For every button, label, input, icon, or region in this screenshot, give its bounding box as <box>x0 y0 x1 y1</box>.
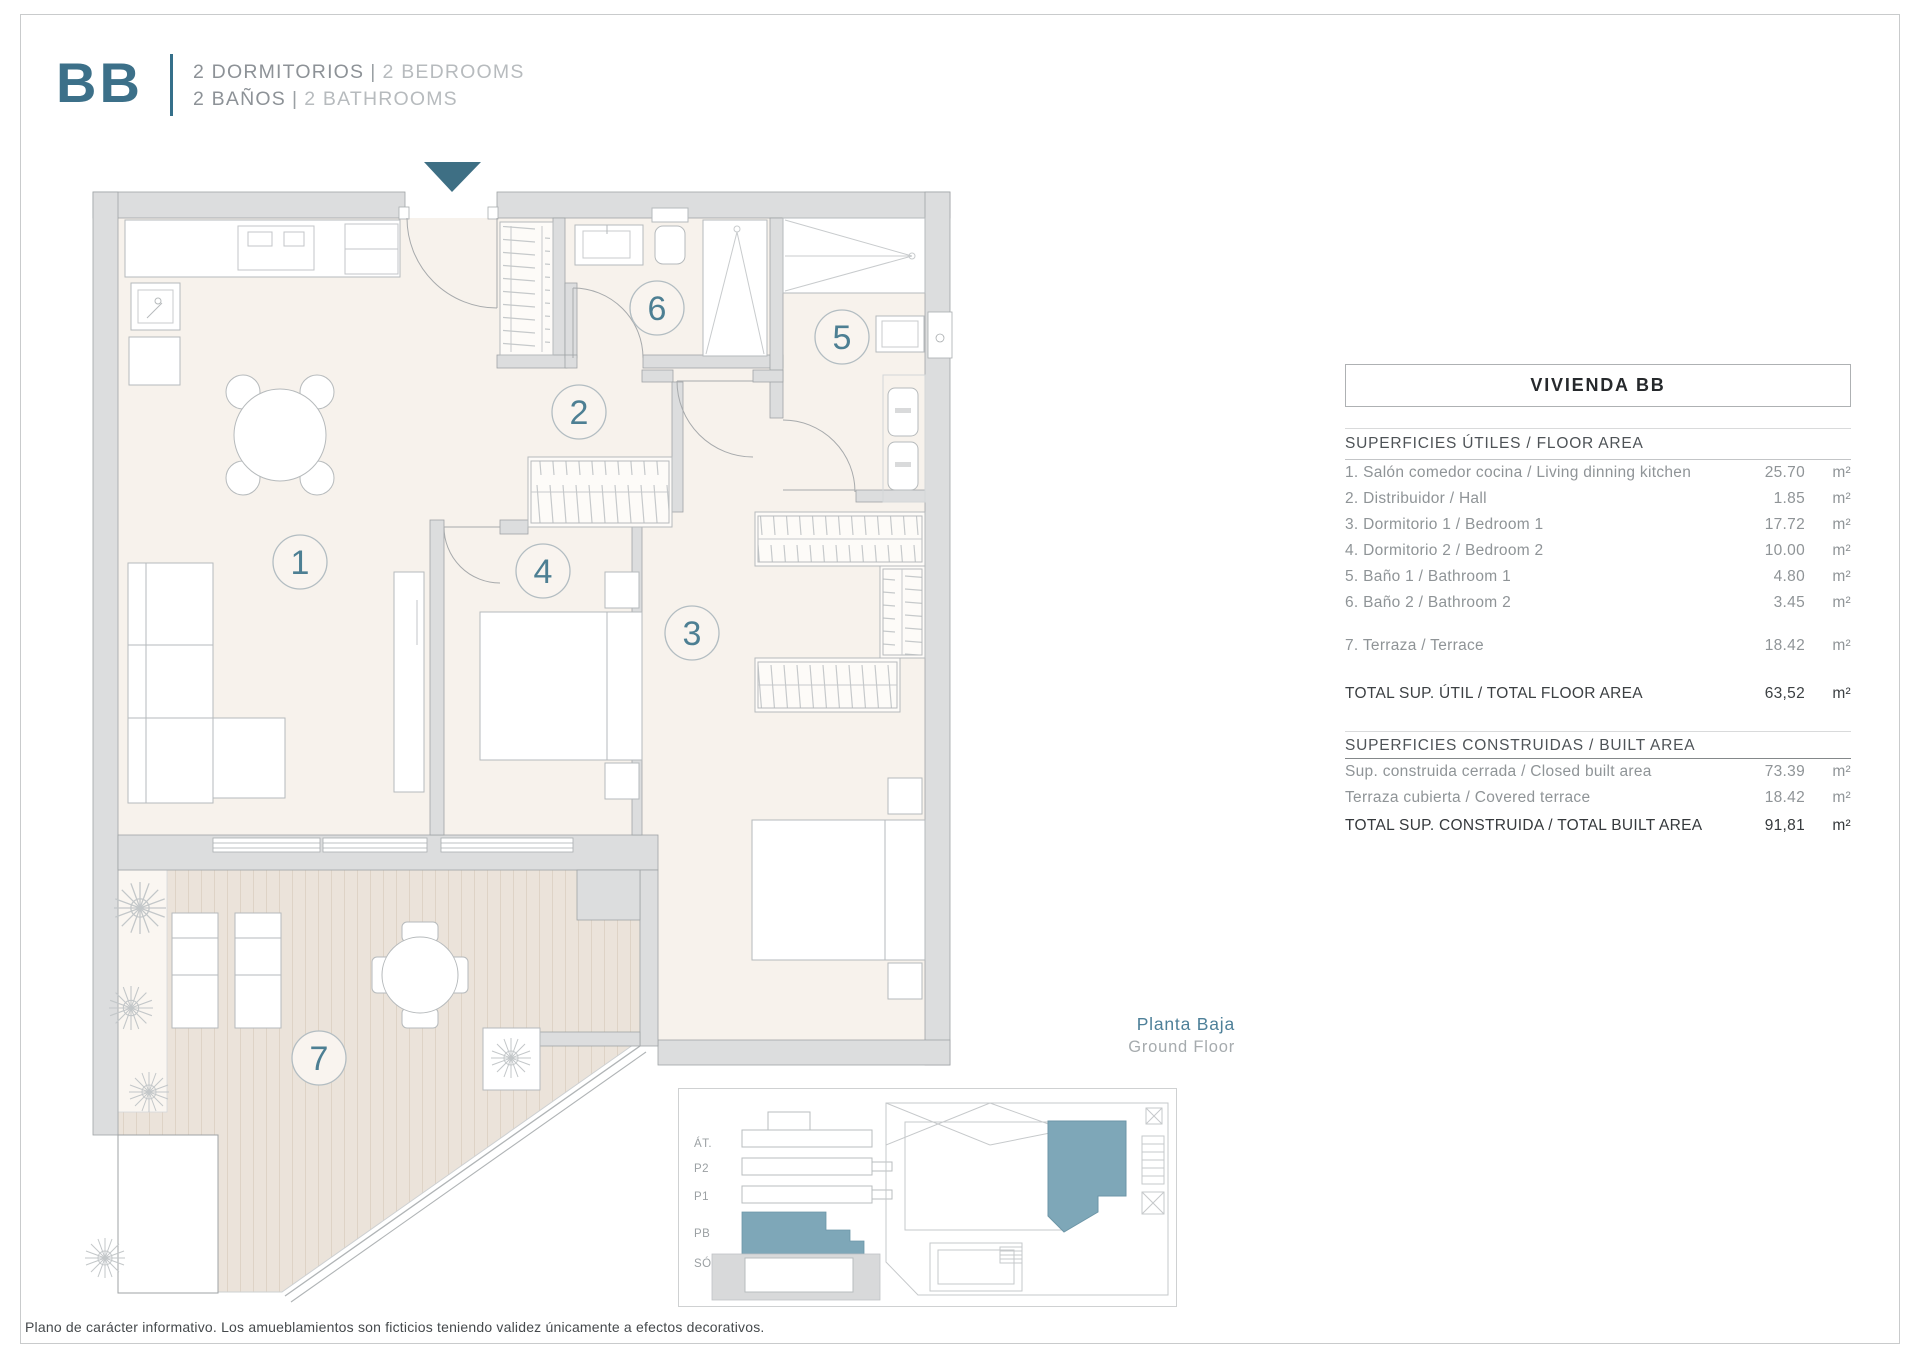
bedrooms-en: 2 BEDROOMS <box>383 61 525 83</box>
table-row: 5. Baño 1 / Bathroom 14.80m² <box>1345 564 1851 590</box>
bedrooms-line: 2 DORMITORIOS|2 BEDROOMS <box>193 59 525 86</box>
total-floor-area-row: TOTAL SUP. ÚTIL / TOTAL FLOOR AREA63,52m… <box>1345 681 1851 707</box>
table-row: 1. Salón comedor cocina / Living dinning… <box>1345 460 1851 486</box>
floor-level-en: Ground Floor <box>1000 1036 1235 1059</box>
separator: | <box>364 61 382 83</box>
table-row: Sup. construida cerrada / Closed built a… <box>1345 759 1851 785</box>
bathrooms-es: 2 BAÑOS <box>193 88 286 110</box>
useful-area-header: SUPERFICIES ÚTILES / FLOOR AREA <box>1345 429 1851 459</box>
header-divider <box>170 54 173 116</box>
table-row: 6. Baño 2 / Bathroom 23.45m² <box>1345 590 1851 616</box>
disclaimer-text: Plano de carácter informativo. Los amueb… <box>25 1319 765 1335</box>
table-row: 3. Dormitorio 1 / Bedroom 117.72m² <box>1345 512 1851 538</box>
table-title: VIVIENDA BB <box>1345 364 1851 407</box>
unit-code: BB <box>56 50 143 115</box>
total-built-area-row: TOTAL SUP. CONSTRUIDA / TOTAL BUILT AREA… <box>1345 813 1851 839</box>
table-row: 4. Dormitorio 2 / Bedroom 210.00m² <box>1345 538 1851 564</box>
separator: | <box>286 88 304 110</box>
built-area-header: SUPERFICIES CONSTRUIDAS / BUILT AREA <box>1345 732 1851 758</box>
bathrooms-en: 2 BATHROOMS <box>304 88 458 110</box>
bathrooms-line: 2 BAÑOS|2 BATHROOMS <box>193 86 525 113</box>
floor-level-es: Planta Baja <box>1000 1013 1235 1036</box>
table-row: Terraza cubierta / Covered terrace18.42m… <box>1345 785 1851 811</box>
brochure-page: BB 2 DORMITORIOS|2 BEDROOMS 2 BAÑOS|2 BA… <box>0 0 1920 1357</box>
header-summary: 2 DORMITORIOS|2 BEDROOMS 2 BAÑOS|2 BATHR… <box>193 59 525 113</box>
table-row-terrace: 7. Terraza / Terrace18.42m² <box>1345 633 1851 659</box>
table-row: 2. Distribuidor / Hall1.85m² <box>1345 486 1851 512</box>
area-table: VIVIENDA BB SUPERFICIES ÚTILES / FLOOR A… <box>1345 364 1851 839</box>
bedrooms-es: 2 DORMITORIOS <box>193 61 364 83</box>
floor-level-label: Planta Baja Ground Floor <box>1000 1013 1235 1059</box>
location-diagrams-box <box>678 1088 1177 1307</box>
